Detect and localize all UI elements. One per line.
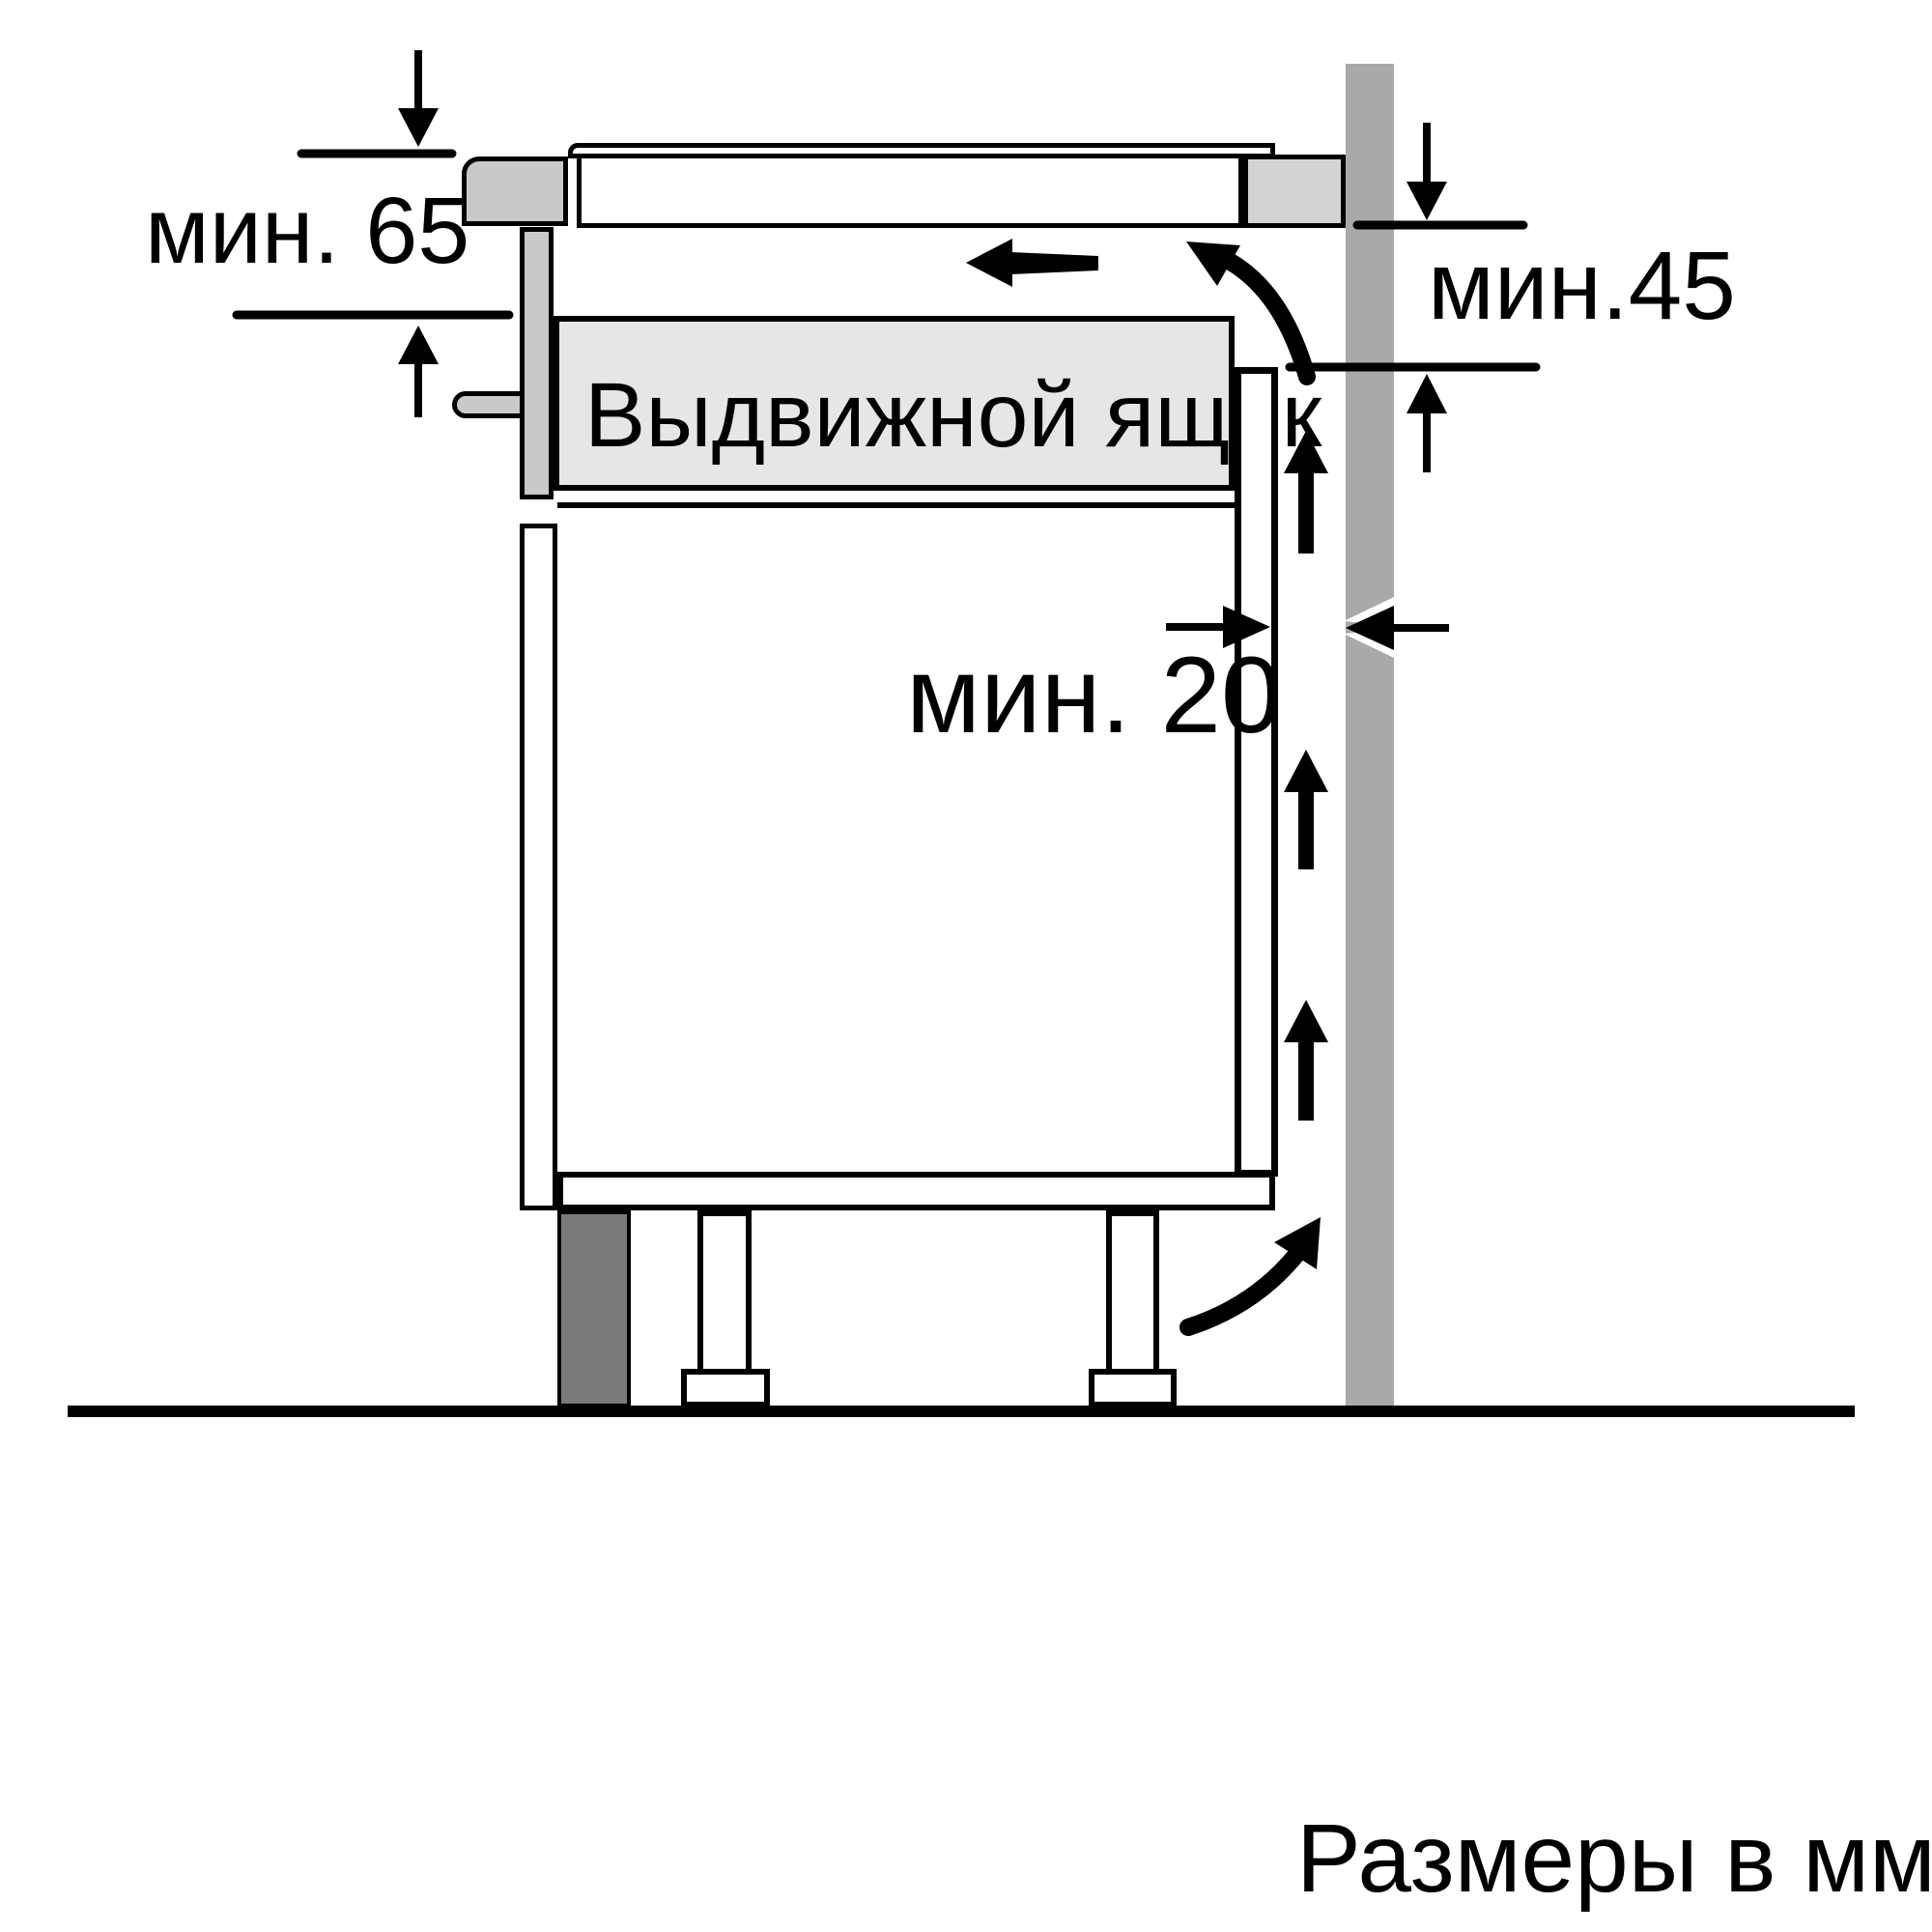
mounting-peg [452, 391, 527, 418]
cabinet-side-wall [520, 524, 557, 1210]
dim-65-label: мин. 65 [145, 184, 469, 277]
airflow-bottom-curve [1188, 1256, 1295, 1327]
dim-45-label: мин.45 [1428, 238, 1736, 334]
worktop-block [1243, 155, 1346, 228]
cabinet-back-panel [1235, 367, 1278, 1177]
hob-front-trim [462, 156, 568, 226]
airflow-up-arrow-3-icon [1284, 1000, 1328, 1042]
installation-diagram: Выдвижной ящик [0, 0, 1932, 1932]
wall [1346, 64, 1394, 1406]
drawer-label: Выдвижной ящик [584, 370, 1321, 462]
cabinet-bottom-panel [557, 1172, 1275, 1210]
airflow-top-curve-arrowhead-icon [1186, 241, 1240, 286]
divider-line [557, 502, 1238, 508]
dim-20-label: мин. 20 [906, 641, 1281, 750]
hob-glass [568, 143, 1275, 158]
airflow-top-curve [1229, 261, 1307, 377]
leg-front-foot [681, 1369, 770, 1407]
front-rail [520, 227, 554, 499]
dim-65-down-arrow-icon [398, 108, 439, 147]
leg-back-foot [1089, 1369, 1177, 1407]
airflow-left-arrow-icon [966, 239, 1012, 287]
dim-45-down-arrow-icon [1406, 182, 1447, 220]
hob-body [577, 153, 1243, 228]
drawer-box: Выдвижной ящик [554, 316, 1235, 491]
plinth-strip [557, 1210, 631, 1407]
leg-back-shaft [1106, 1210, 1159, 1375]
footer-label: Размеры в мм [1296, 1810, 1932, 1907]
leg-front-shaft [697, 1210, 752, 1375]
dim-45-up-arrow-icon [1406, 374, 1447, 413]
dim-65-up-arrow-icon [398, 326, 439, 364]
airflow-left-arrow-shaft [1010, 252, 1098, 274]
floor-line [68, 1406, 1855, 1417]
airflow-bottom-curve-arrowhead-icon [1274, 1217, 1321, 1269]
airflow-up-arrow-2-icon [1284, 750, 1328, 792]
